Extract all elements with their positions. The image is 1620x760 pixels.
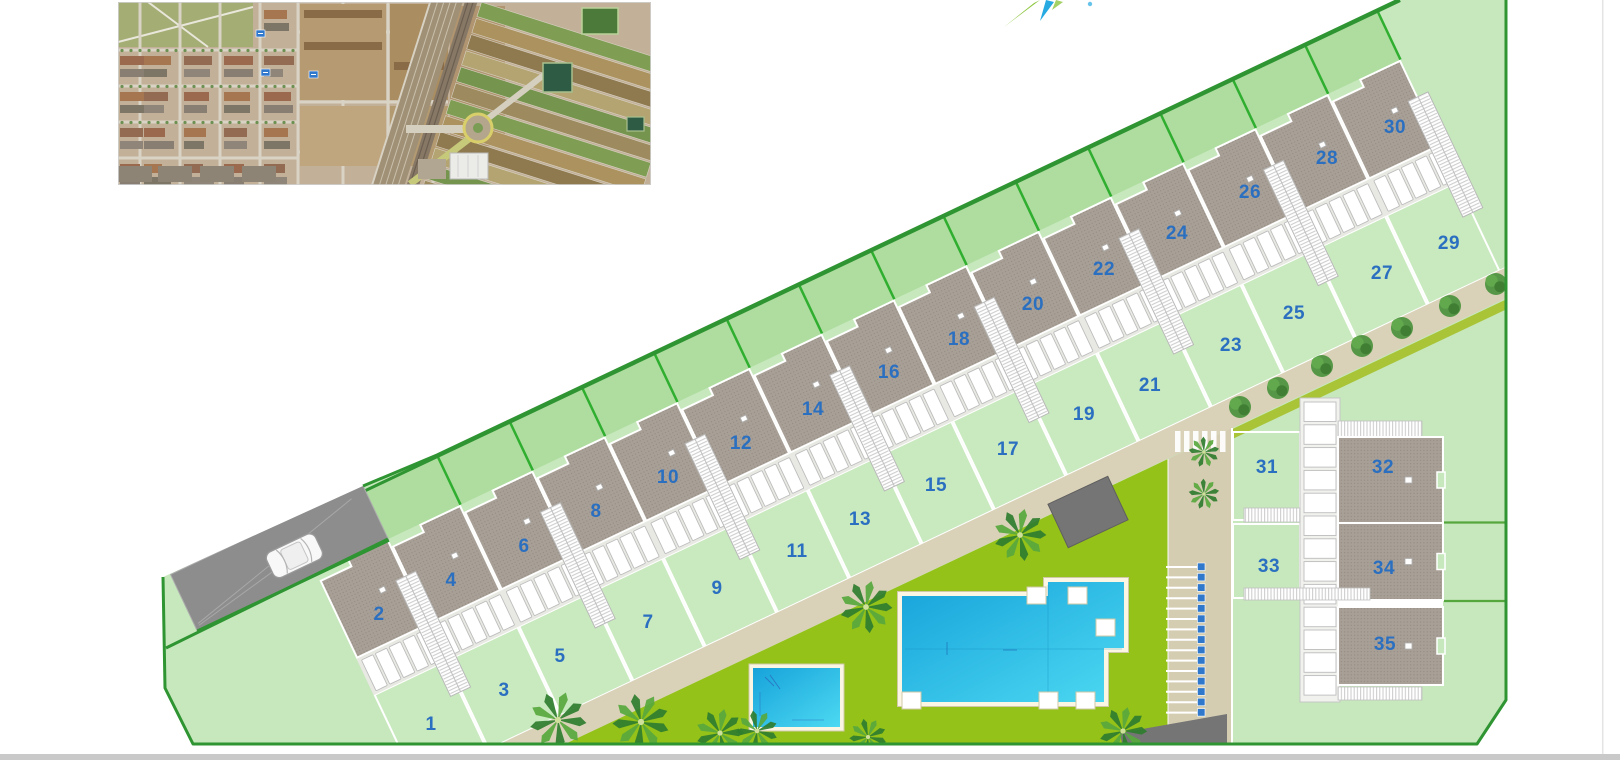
building	[224, 128, 247, 137]
building	[120, 128, 143, 137]
plot-label-2: 2	[373, 604, 384, 625]
building	[224, 105, 250, 113]
plot-label-22: 22	[1093, 259, 1115, 280]
parking-marker-icon	[1198, 667, 1206, 675]
plot-label-14: 14	[802, 399, 824, 420]
street-tree	[192, 49, 195, 52]
hedge-tree-icon	[1351, 335, 1373, 357]
building	[224, 56, 253, 65]
walkway	[1244, 508, 1300, 522]
plot-label-27: 27	[1371, 263, 1393, 284]
building	[264, 23, 289, 31]
street-tree	[165, 49, 168, 52]
street-tree	[138, 85, 141, 88]
terrace-cell	[1304, 653, 1336, 673]
vacant-parcel	[300, 106, 386, 166]
building	[120, 141, 143, 149]
satellite-inset-map	[118, 0, 682, 275]
parking-marker-icon	[1198, 615, 1206, 623]
street-tree	[201, 121, 204, 124]
street-tree	[228, 121, 231, 124]
roof-chimney	[1405, 559, 1412, 565]
terrace-cell	[1304, 470, 1336, 490]
masterplan-page: 1234567891011121314151617181920212223242…	[0, 0, 1620, 760]
plot-label-15: 15	[925, 475, 947, 496]
building	[264, 10, 287, 19]
plot-label-32: 32	[1372, 457, 1394, 478]
street-tree	[246, 121, 249, 124]
street-tree	[228, 49, 231, 52]
street-tree	[138, 121, 141, 124]
vacant-parcel	[300, 4, 386, 100]
plot-label-20: 20	[1022, 294, 1044, 315]
street-tree	[291, 49, 294, 52]
building	[200, 166, 234, 182]
pool-pad	[1039, 692, 1058, 709]
street-tree	[219, 85, 222, 88]
street-tree	[228, 85, 231, 88]
plot-label-17: 17	[997, 439, 1019, 460]
building	[264, 105, 293, 113]
street-tree	[183, 49, 186, 52]
street-tree	[147, 49, 150, 52]
terrace-cell	[1304, 539, 1336, 559]
street-tree	[201, 49, 204, 52]
hedge-tree-icon	[1311, 355, 1333, 377]
terrace-cell	[1304, 425, 1336, 445]
parking-marker-icon	[1198, 605, 1206, 613]
parking-marker-icon	[1198, 636, 1206, 644]
street-tree	[156, 85, 159, 88]
building	[144, 128, 165, 137]
plot-label-6: 6	[518, 536, 529, 557]
street-tree	[192, 85, 195, 88]
zebra-crossing	[1184, 431, 1190, 452]
street-tree	[255, 85, 258, 88]
hedge-tree-icon	[1439, 295, 1461, 317]
terrace-cell	[1304, 676, 1336, 696]
building	[144, 105, 164, 113]
street-tree	[273, 49, 276, 52]
street-tree	[264, 85, 267, 88]
street-tree	[255, 49, 258, 52]
plot-label-21: 21	[1139, 375, 1161, 396]
plot-label-31: 31	[1256, 457, 1278, 478]
masterplan-canvas: 1234567891011121314151617181920212223242…	[0, 0, 1620, 760]
block-roof	[1338, 437, 1443, 523]
street-tree	[156, 121, 159, 124]
plot-label-26: 26	[1239, 182, 1261, 203]
terrace-cell	[1304, 402, 1336, 422]
parking-lot	[418, 159, 446, 179]
street-tree	[120, 85, 123, 88]
street-tree	[129, 49, 132, 52]
terrace-cell	[1304, 448, 1336, 468]
pond	[627, 117, 644, 131]
building	[264, 92, 291, 101]
plot-label-7: 7	[642, 612, 653, 633]
street-tree	[183, 85, 186, 88]
building	[184, 141, 204, 149]
building	[158, 166, 192, 182]
farm-field	[415, 197, 620, 275]
building	[184, 128, 206, 137]
building	[184, 92, 209, 101]
building	[264, 128, 288, 137]
street-tree	[264, 49, 267, 52]
terrace-cell	[1304, 516, 1336, 536]
street-tree	[219, 49, 222, 52]
plot-label-9: 9	[711, 578, 722, 599]
street-tree	[201, 85, 204, 88]
building	[224, 92, 250, 101]
building	[144, 69, 167, 77]
terrace-cell	[1304, 562, 1336, 582]
street-tree	[291, 85, 294, 88]
street-tree	[156, 49, 159, 52]
street-tree	[282, 85, 285, 88]
plot-label-29: 29	[1438, 233, 1460, 254]
street-tree	[210, 49, 213, 52]
parking-marker-icon	[1198, 709, 1206, 717]
plot-label-34: 34	[1373, 558, 1395, 579]
parking-marker-icon	[1198, 563, 1206, 571]
hedge-tree-icon	[1391, 317, 1413, 339]
street-tree	[210, 85, 213, 88]
parking-marker-icon	[1198, 573, 1206, 581]
terrace-cell	[1304, 630, 1336, 650]
roof-chimney	[1405, 643, 1412, 649]
main-pool	[902, 582, 1124, 702]
building	[242, 166, 276, 182]
building	[224, 141, 247, 149]
parking-marker-icon	[1198, 657, 1206, 665]
terrace-cell	[1304, 493, 1336, 513]
farm-field	[420, 180, 625, 258]
street-tree	[120, 121, 123, 124]
street-tree	[174, 121, 177, 124]
pool-pad	[1096, 619, 1115, 636]
building	[144, 92, 168, 101]
building	[264, 141, 290, 149]
building	[184, 69, 210, 77]
parking-marker-icon	[1198, 584, 1206, 592]
building	[118, 166, 152, 182]
terrace-cell	[1304, 607, 1336, 627]
parking-marker-icon	[1198, 594, 1206, 602]
plot-label-30: 30	[1384, 117, 1406, 138]
plot-label-24: 24	[1166, 223, 1188, 244]
street-tree	[147, 121, 150, 124]
street-tree	[264, 121, 267, 124]
plot-label-4: 4	[445, 570, 456, 591]
building	[184, 56, 212, 65]
street-tree	[237, 121, 240, 124]
plot-label-8: 8	[590, 501, 601, 522]
street-tree	[174, 49, 177, 52]
plot-label-11: 11	[786, 541, 807, 562]
street-tree	[291, 121, 294, 124]
street-tree	[282, 121, 285, 124]
street-tree	[246, 49, 249, 52]
building	[264, 56, 294, 65]
plot-label-18: 18	[948, 329, 970, 350]
street-tree	[237, 85, 240, 88]
street-tree	[147, 85, 150, 88]
street-tree	[165, 121, 168, 124]
plot-label-3: 3	[498, 680, 509, 701]
pool-pad	[1068, 587, 1087, 604]
pool-pad	[1076, 692, 1095, 709]
pool-pad	[902, 692, 921, 709]
plot-label-13: 13	[849, 509, 871, 530]
street-tree	[246, 85, 249, 88]
building	[144, 56, 171, 65]
warehouse	[450, 153, 488, 179]
page-edge	[1602, 0, 1604, 754]
building	[184, 105, 207, 113]
street-tree	[165, 85, 168, 88]
building	[144, 141, 174, 149]
plot-label-12: 12	[730, 433, 752, 454]
plot-label-35: 35	[1374, 634, 1396, 655]
street-tree	[174, 85, 177, 88]
parking-marker-icon	[1198, 698, 1206, 706]
page-edge	[0, 754, 1620, 760]
roof-chimney	[1405, 477, 1412, 483]
building	[224, 69, 253, 77]
plot-label-1: 1	[425, 714, 436, 735]
street-tree	[138, 49, 141, 52]
plot-label-10: 10	[657, 467, 679, 488]
plot-label-33: 33	[1258, 556, 1280, 577]
street-tree	[192, 121, 195, 124]
street-tree	[183, 121, 186, 124]
street-tree	[210, 121, 213, 124]
walkway	[1244, 588, 1370, 600]
street-tree	[273, 85, 276, 88]
plot-label-5: 5	[554, 646, 565, 667]
balcony-strip	[1338, 421, 1422, 437]
street-tree	[273, 121, 276, 124]
sports-field	[582, 8, 618, 34]
street-tree	[237, 49, 240, 52]
parking-marker-icon	[1198, 625, 1206, 633]
plot-label-19: 19	[1073, 404, 1095, 425]
street-tree	[129, 121, 132, 124]
parking-marker-icon	[1198, 677, 1206, 685]
plot-label-28: 28	[1316, 148, 1338, 169]
street-tree	[129, 85, 132, 88]
street-tree	[255, 121, 258, 124]
logo-star-icon	[1004, 0, 1092, 27]
parking-marker-icon	[1198, 688, 1206, 696]
pond	[543, 63, 572, 92]
plot-label-23: 23	[1220, 335, 1242, 356]
zebra-crossing	[1220, 431, 1226, 452]
zebra-crossing	[1175, 431, 1181, 452]
roundabout	[464, 114, 492, 142]
pool-pad	[1027, 587, 1046, 604]
parking-marker-icon	[1198, 646, 1206, 654]
hedge-tree-icon	[1267, 377, 1289, 399]
plot-label-16: 16	[878, 362, 900, 383]
balcony-strip	[1338, 687, 1422, 700]
building	[120, 105, 146, 113]
building	[120, 92, 146, 101]
street-tree	[282, 49, 285, 52]
street-tree	[120, 49, 123, 52]
plot-label-25: 25	[1283, 303, 1305, 324]
hedge-tree-icon	[1229, 396, 1251, 418]
street-tree	[219, 121, 222, 124]
hedge-tree-icon	[1485, 273, 1507, 295]
